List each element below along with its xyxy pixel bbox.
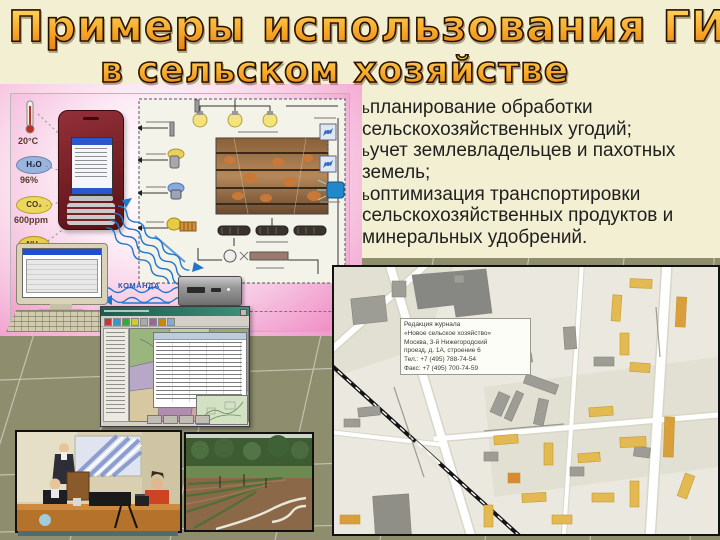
bottom-strip (18, 531, 178, 536)
gis-button (179, 415, 194, 424)
bullet-item: ьпланирование обработки сельскохозяйстве… (362, 97, 696, 140)
diagram-boundary-line (240, 311, 346, 312)
bullet-text: планирование обработки сельскохозяйствен… (362, 97, 632, 140)
trees (186, 435, 312, 468)
info-line: Москва, 3-й Нижегородский (404, 339, 527, 348)
info-line: проезд, д. 1А, строение 6 (404, 347, 527, 356)
bullet-list: ьпланирование обработки сельскохозяйстве… (362, 97, 696, 249)
info-line: «Новое сельское хозяйство» (404, 330, 527, 339)
gis-button (163, 415, 178, 424)
phone-screen (71, 137, 113, 195)
gis-toolbar (101, 316, 249, 327)
desktop-monitor (16, 243, 108, 305)
slide-title-line1: Примеры использования ГИС (8, 2, 720, 52)
bullet-item: ьучет землевладельцев и пахотных земель; (362, 140, 696, 183)
gis-software-window (100, 306, 250, 427)
bullet-marker: ь (362, 187, 370, 204)
close-icon (240, 309, 247, 316)
phone-screen-footer (72, 188, 112, 194)
bullet-item: ьоптимизация транспортировки сельскохозя… (362, 184, 696, 249)
info-line: Тел.: +7 (495) 788-74-54 (404, 356, 527, 365)
info-line: Редакция журнала (404, 321, 527, 330)
bullet-marker: ь (362, 143, 370, 160)
monitor-screen (22, 248, 102, 298)
spreadsheet-table (26, 259, 98, 293)
gis-title-bar (101, 307, 249, 316)
conference-photo (15, 430, 182, 533)
field-photo (184, 432, 314, 532)
phone-speaker (83, 117, 99, 120)
window-title-bar (23, 249, 101, 255)
projection-screen (75, 436, 141, 476)
gis-table-rows (156, 342, 242, 402)
slide-title-line2: в сельском хозяйстве (100, 50, 569, 91)
bullet-marker: ь (362, 100, 370, 117)
gis-layer-panel (103, 328, 129, 422)
gis-table-header (154, 333, 246, 340)
gis-button (195, 415, 210, 424)
bullet-text: оптимизация транспортировки сельскохозяй… (362, 184, 673, 248)
info-line: Факс: +7 (495) 700-74-59 (404, 365, 527, 374)
gsm-modem (178, 276, 242, 306)
sms-arrow-label (122, 302, 170, 304)
city-map (332, 265, 720, 536)
sms-text (75, 148, 107, 178)
modem-led (227, 288, 230, 291)
gis-button (147, 415, 162, 424)
phone-screen-header (72, 138, 112, 145)
bullet-text: учет землевладельцев и пахотных земель; (362, 140, 675, 183)
map-info-box: Редакция журнала «Новое сельское хозяйст… (400, 318, 531, 375)
podium (67, 472, 89, 500)
command-arrow-label: КОМАНДА (118, 281, 160, 290)
